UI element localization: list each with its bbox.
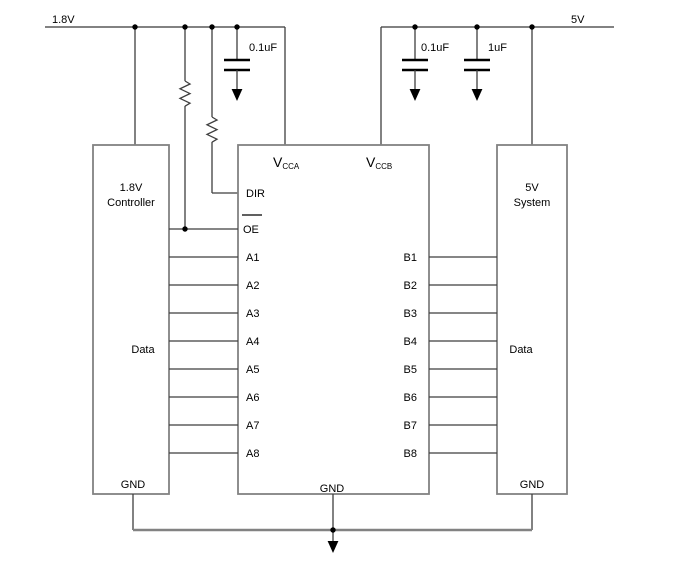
ground-arrow-icon xyxy=(328,530,339,553)
resistor-icon xyxy=(207,27,238,193)
system-box: 5V System Data GND xyxy=(497,145,567,494)
ic-pin-b6: B6 xyxy=(404,392,417,404)
capacitor-label: 1uF xyxy=(488,42,507,54)
ic-pin-a4: A4 xyxy=(246,336,259,348)
controller-data-label: Data xyxy=(131,344,155,356)
system-gnd-label: GND xyxy=(520,479,545,491)
ic-gnd-label: GND xyxy=(320,483,345,495)
ic-pin-b5: B5 xyxy=(404,364,417,376)
schematic-page: 1.8V 5V 0.1uF 0.1uF 1uF 1. xyxy=(0,0,679,567)
capacitor-icon xyxy=(402,27,428,101)
controller-gnd-label: GND xyxy=(121,479,146,491)
ic-pin-a3: A3 xyxy=(246,308,259,320)
a-port-wires xyxy=(169,257,238,453)
ic-pin-a6: A6 xyxy=(246,392,259,404)
junction-dots xyxy=(132,24,534,532)
ground-net xyxy=(133,494,532,530)
capacitor-label: 0.1uF xyxy=(249,42,277,54)
ic-pin-a5: A5 xyxy=(246,364,259,376)
b-port-wires xyxy=(429,257,497,453)
ic-pin-b3: B3 xyxy=(404,308,417,320)
controller-title-line2: Controller xyxy=(107,197,155,209)
resistor-icon xyxy=(180,27,190,229)
ic-pin-a1: A1 xyxy=(246,252,259,264)
ic-pin-b2: B2 xyxy=(404,280,417,292)
rail-label-1v8: 1.8V xyxy=(52,14,75,26)
capacitor-label: 0.1uF xyxy=(421,42,449,54)
ic-oe-label: OE xyxy=(243,224,259,236)
ic-pin-b7: B7 xyxy=(404,420,417,432)
ic-vcca-label: VCCA xyxy=(273,154,300,171)
system-title-line2: System xyxy=(514,197,551,209)
schematic-svg: 1.8V 5V 0.1uF 0.1uF 1uF 1. xyxy=(0,0,679,567)
capacitor-icon xyxy=(464,27,490,101)
controller-title-line1: 1.8V xyxy=(120,182,143,194)
ic-pin-a7: A7 xyxy=(246,420,259,432)
ic-pin-a8: A8 xyxy=(246,448,259,460)
ic-pin-a2: A2 xyxy=(246,280,259,292)
capacitor-icon xyxy=(224,27,250,101)
ic-dir-label: DIR xyxy=(246,188,265,200)
ic-pin-b4: B4 xyxy=(404,336,417,348)
ic-pin-b8: B8 xyxy=(404,448,417,460)
system-title-line1: 5V xyxy=(525,182,539,194)
system-data-label: Data xyxy=(509,344,533,356)
controller-box: 1.8V Controller Data GND xyxy=(93,145,169,494)
ic-box: VCCA VCCB DIR OE GND A1 A2 A3 A4 A5 A6 A… xyxy=(238,145,429,495)
ic-pin-b1: B1 xyxy=(404,252,417,264)
ic-vccb-label: VCCB xyxy=(366,154,392,171)
rail-label-5v: 5V xyxy=(571,14,585,26)
